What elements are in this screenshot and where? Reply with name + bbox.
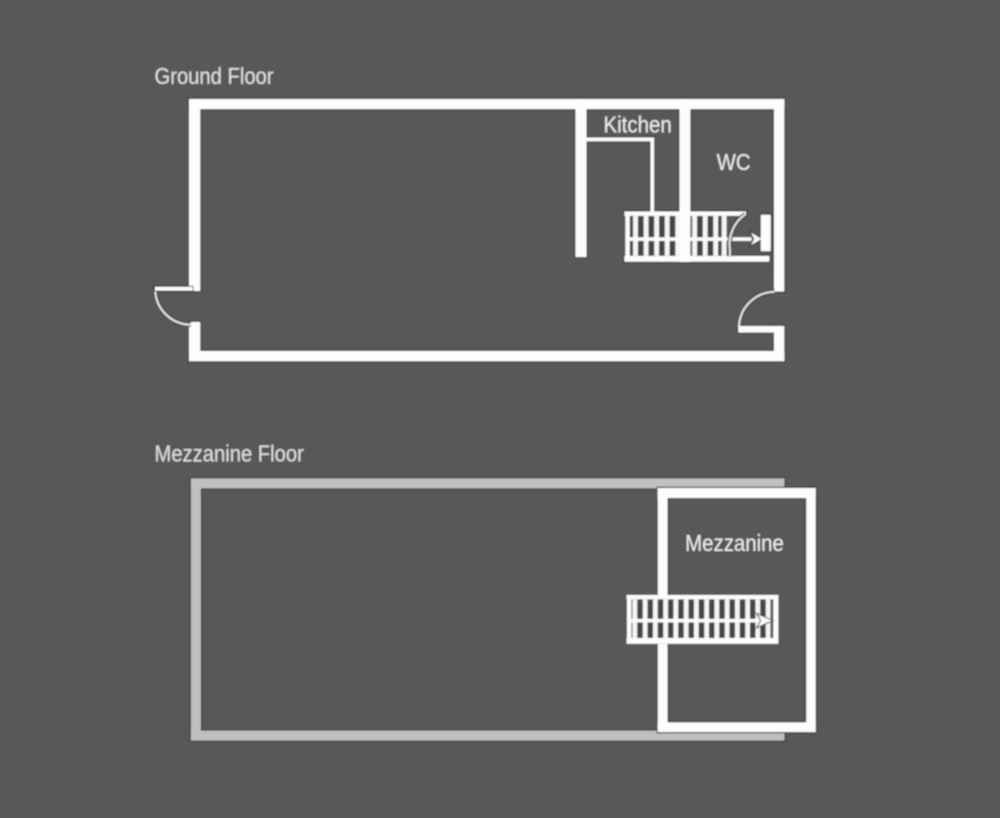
svg-text:Mezzanine: Mezzanine xyxy=(685,530,784,557)
svg-text:Mezzanine Floor: Mezzanine Floor xyxy=(155,440,304,467)
svg-text:WC: WC xyxy=(717,149,751,176)
svg-text:Kitchen: Kitchen xyxy=(604,111,672,138)
svg-text:Ground Floor: Ground Floor xyxy=(155,63,274,90)
